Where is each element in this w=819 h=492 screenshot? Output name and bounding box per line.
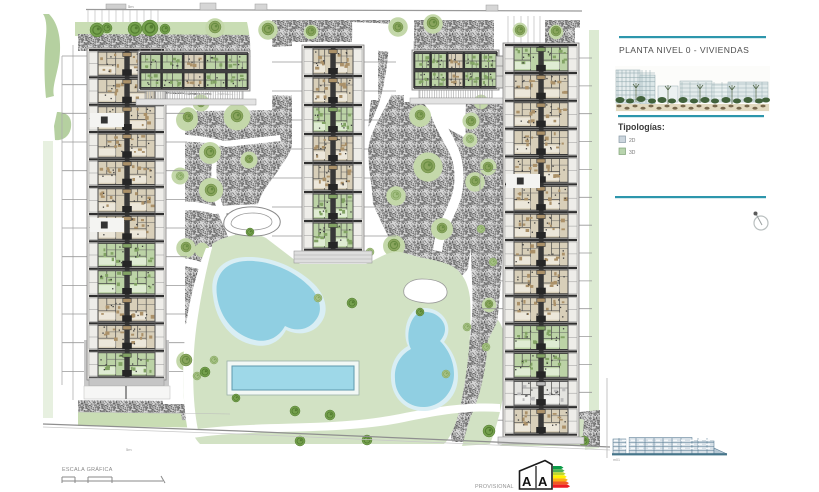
svg-text:5m: 5m xyxy=(126,447,132,452)
svg-text:m01: m01 xyxy=(613,458,620,462)
svg-text:PROVISIONAL: PROVISIONAL xyxy=(475,484,514,490)
svg-text:PLANTA NIVEL 0 - VIVIENDAS: PLANTA NIVEL 0 - VIVIENDAS xyxy=(619,45,749,55)
svg-text:5m: 5m xyxy=(128,4,134,9)
svg-text:Tipologías:: Tipologías: xyxy=(618,122,665,132)
svg-text:3D: 3D xyxy=(629,150,636,156)
svg-text:2D: 2D xyxy=(629,138,636,144)
svg-text:A: A xyxy=(522,474,532,489)
svg-text:A: A xyxy=(538,474,548,489)
svg-text:ESCALA GRÁFICA: ESCALA GRÁFICA xyxy=(62,466,113,473)
